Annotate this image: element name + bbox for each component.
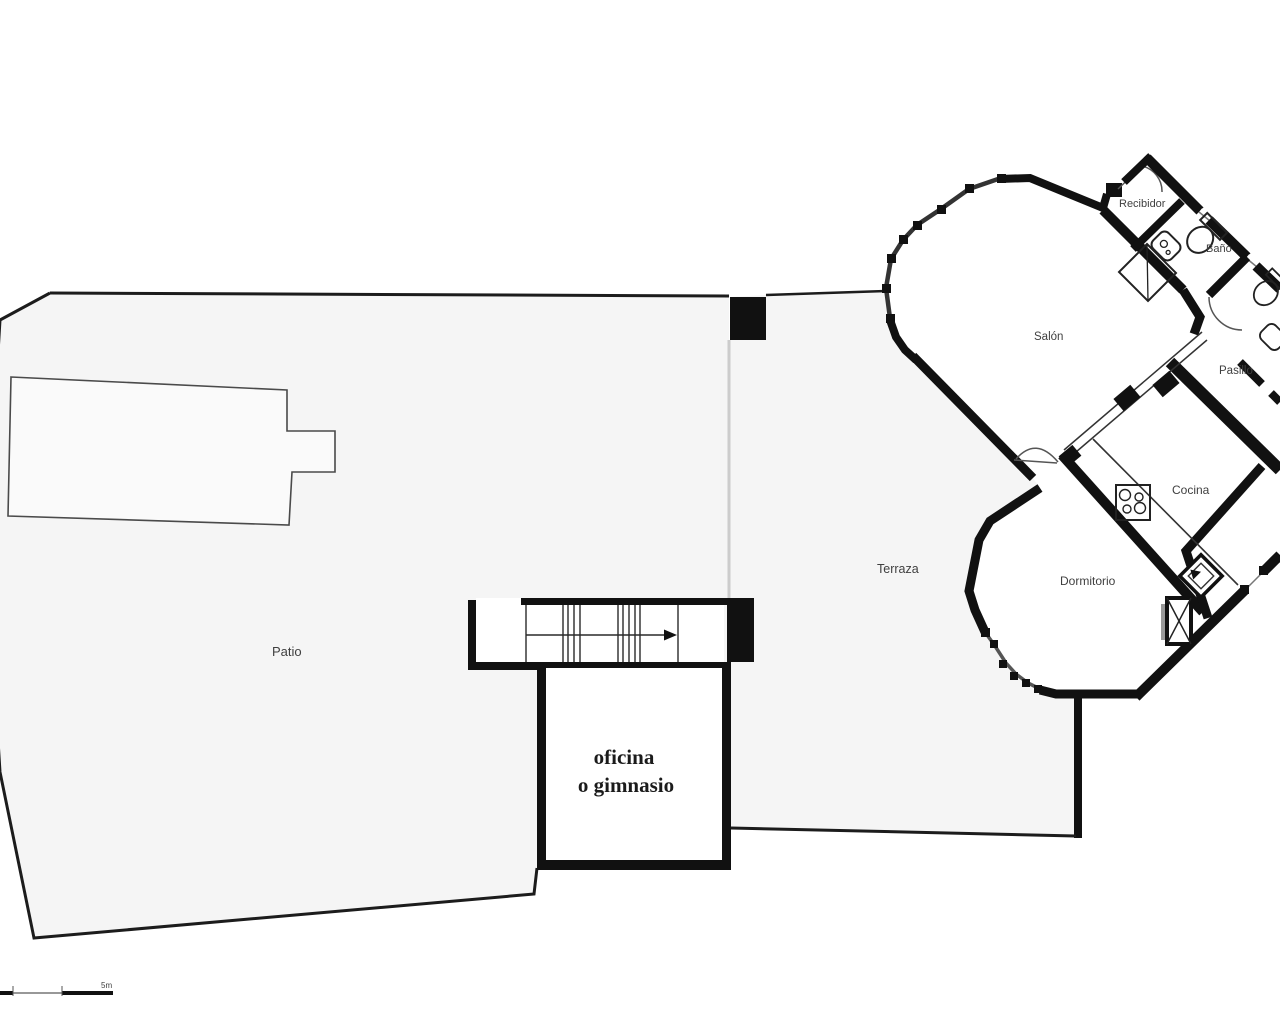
svg-text:Terraza: Terraza xyxy=(877,562,919,576)
svg-text:Salón: Salón xyxy=(1034,331,1063,343)
svg-text:Cocina: Cocina xyxy=(1172,483,1210,497)
svg-text:Dormitorio: Dormitorio xyxy=(1060,574,1116,588)
svg-text:Baño: Baño xyxy=(1206,243,1232,255)
svg-text:5m: 5m xyxy=(101,981,112,990)
svg-text:oficina: oficina xyxy=(594,745,655,769)
svg-text:o gimnasio: o gimnasio xyxy=(578,773,674,797)
svg-text:Patio: Patio xyxy=(272,644,302,659)
svg-text:Recibidor: Recibidor xyxy=(1119,198,1166,210)
svg-text:Pasillo: Pasillo xyxy=(1219,365,1253,377)
